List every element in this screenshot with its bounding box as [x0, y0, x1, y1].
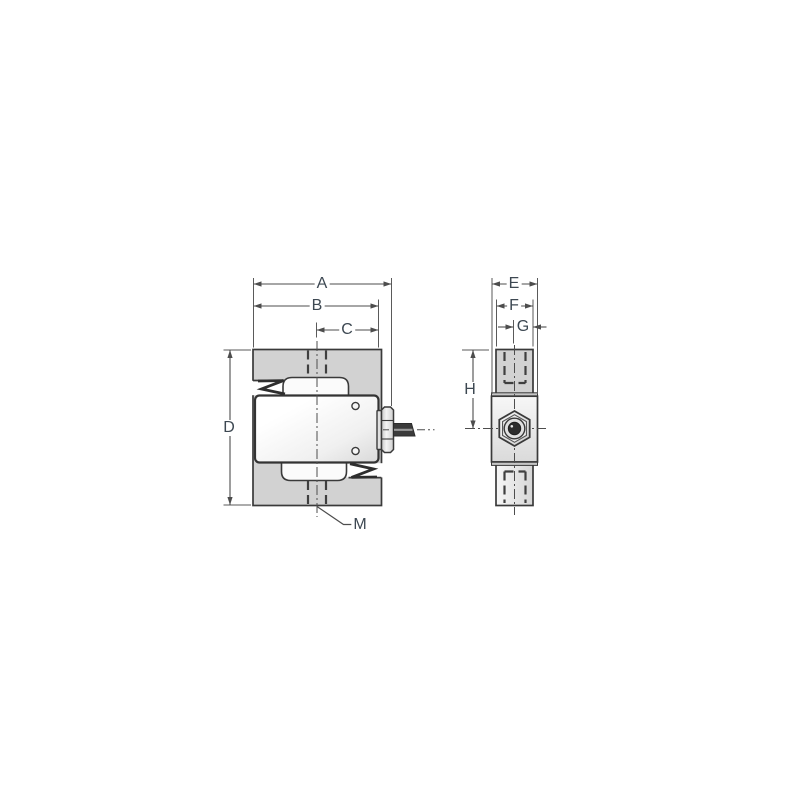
dim-label-e: E	[507, 276, 522, 292]
dim-label-m: M	[351, 517, 368, 533]
front-dome-bottom	[282, 462, 347, 481]
cable-gland	[377, 407, 415, 453]
arrow-icon	[497, 303, 505, 308]
arrow-icon	[530, 281, 538, 286]
side-view	[465, 345, 546, 515]
front-dome-top	[283, 378, 349, 398]
dim-label-c: C	[339, 322, 355, 338]
arrow-icon	[371, 327, 379, 332]
arrow-icon	[384, 281, 392, 286]
arrow-icon	[525, 303, 533, 308]
dim-label-b: B	[310, 298, 325, 314]
load-cell-drawing	[0, 0, 800, 800]
screw-top-icon	[352, 402, 359, 409]
front-view	[251, 341, 435, 525]
arrow-icon	[492, 281, 500, 286]
cable-hole-highlight	[511, 425, 514, 428]
gland-hex-front	[499, 411, 529, 446]
dim-label-d: D	[221, 420, 237, 436]
arrow-icon	[506, 324, 514, 329]
dim-label-f: F	[507, 298, 521, 314]
screw-bottom-icon	[352, 447, 359, 454]
arrow-icon	[254, 281, 262, 286]
arrow-icon	[254, 303, 262, 308]
arrow-icon	[317, 327, 325, 332]
arrow-icon	[227, 497, 232, 505]
m-leader-line	[317, 507, 352, 525]
arrow-icon	[227, 350, 232, 358]
arrow-icon	[470, 421, 475, 429]
arrow-icon	[371, 303, 379, 308]
cable-hole	[508, 422, 520, 434]
arrow-icon	[470, 350, 475, 358]
dim-label-a: A	[315, 276, 330, 292]
technical-drawing-page: A B C D E F G H M	[0, 0, 800, 800]
dim-label-g: G	[515, 319, 531, 335]
dim-label-h: H	[462, 382, 478, 398]
